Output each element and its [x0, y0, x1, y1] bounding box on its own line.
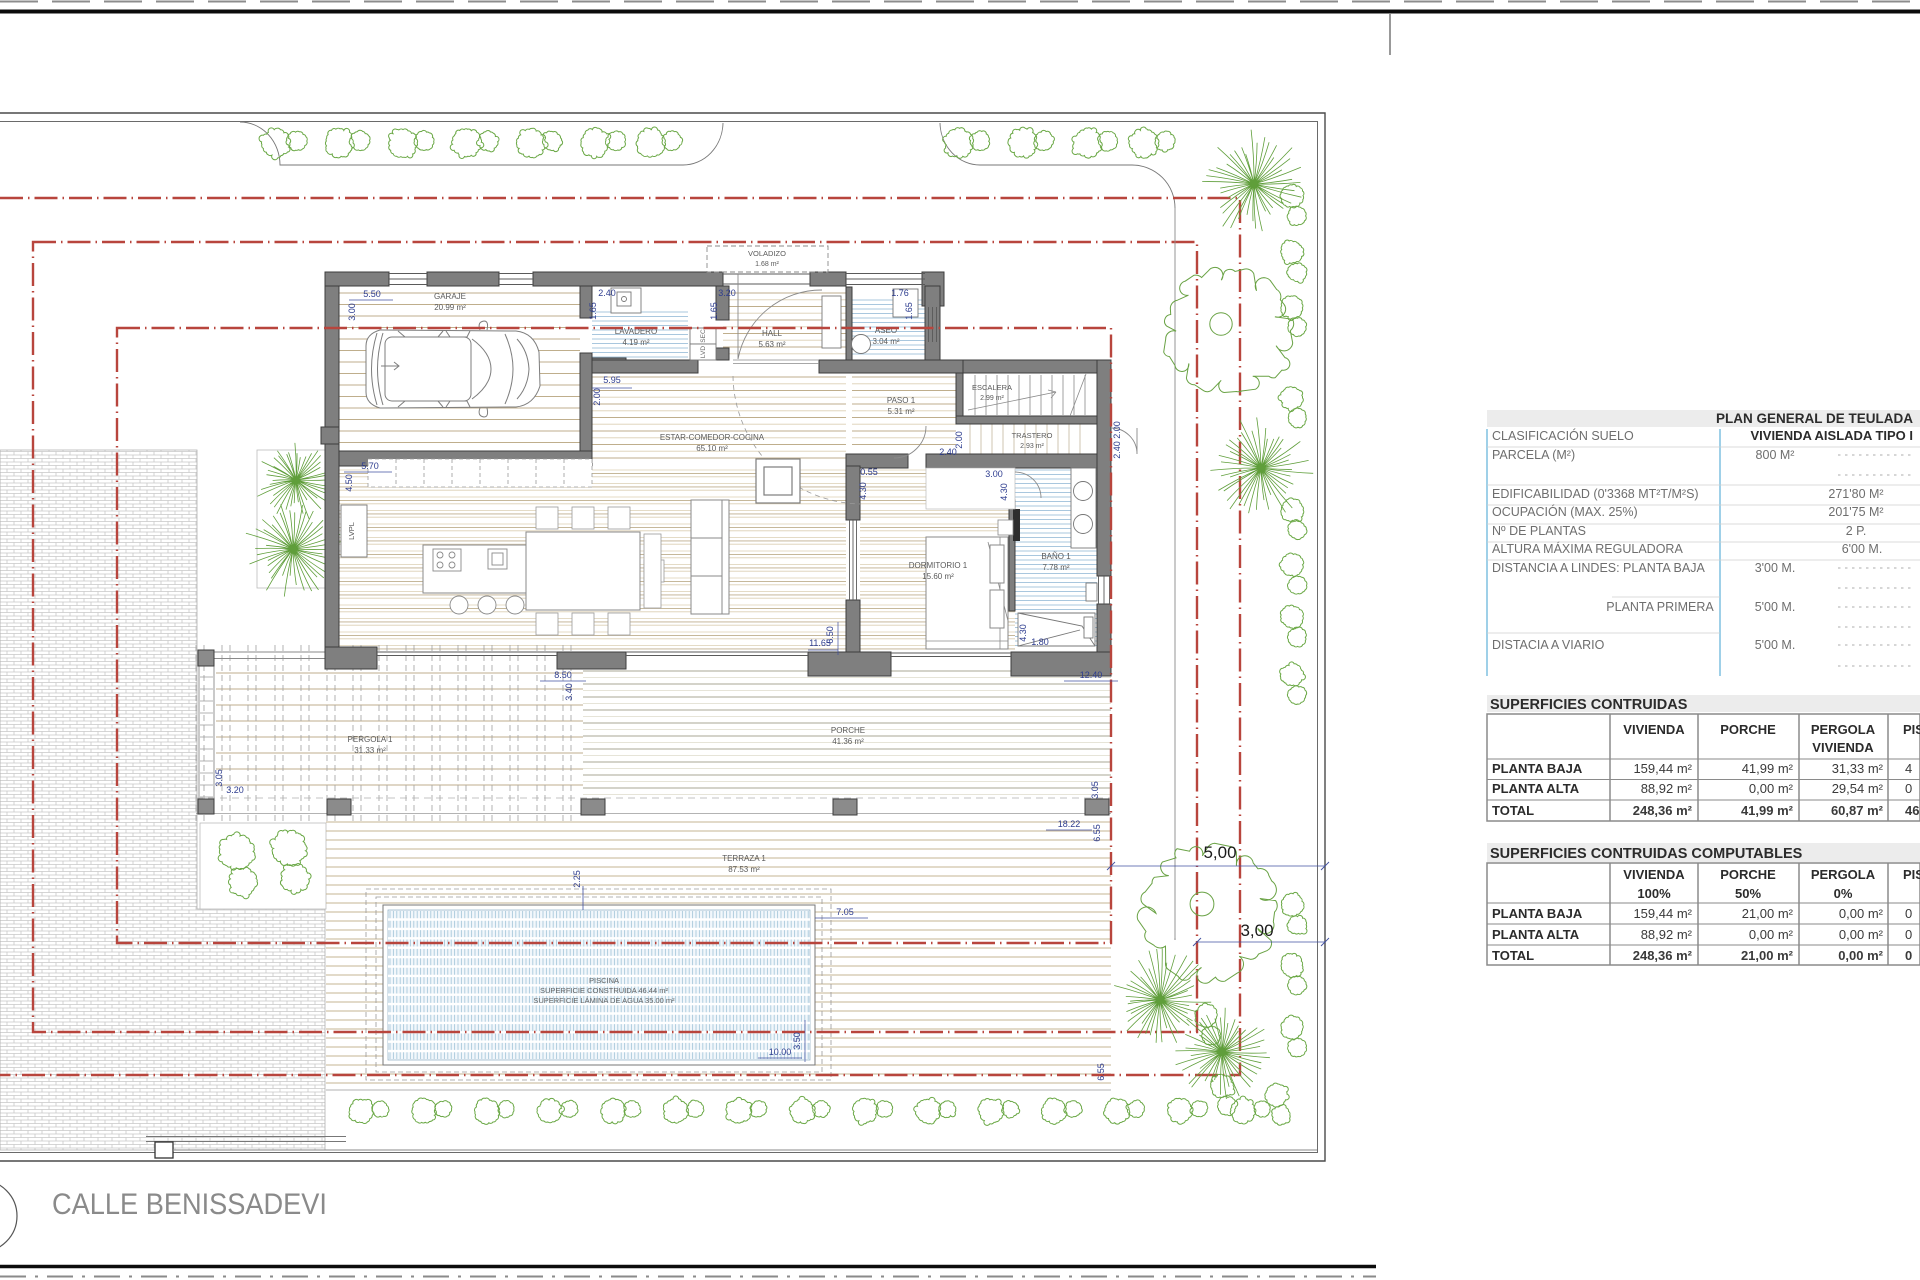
svg-text:PERGOLA: PERGOLA — [1811, 867, 1876, 882]
svg-text:LVD: LVD — [700, 346, 707, 358]
svg-text:0,00 m²: 0,00 m² — [1838, 948, 1883, 963]
svg-text:60,87 m²: 60,87 m² — [1831, 803, 1884, 818]
svg-text:DISTANCIA A LINDES: PLANTA BA: DISTANCIA A LINDES: PLANTA BAJA — [1492, 561, 1705, 575]
svg-text:ESCALERA: ESCALERA — [972, 383, 1012, 392]
svg-text:248,36 m²: 248,36 m² — [1633, 948, 1693, 963]
svg-text:SUPERFICIE LÁMINA DE AGUA 35.0: SUPERFICIE LÁMINA DE AGUA 35.00 m² — [533, 996, 675, 1005]
svg-text:88,92 m²: 88,92 m² — [1641, 927, 1693, 942]
svg-text:3.20: 3.20 — [226, 785, 244, 795]
svg-text:5.50: 5.50 — [363, 289, 381, 299]
svg-text:3'00 M.: 3'00 M. — [1755, 561, 1796, 575]
svg-text:1.76: 1.76 — [891, 288, 909, 298]
svg-text:2.40 2.00: 2.40 2.00 — [1112, 421, 1122, 459]
svg-text:TERRAZA 1: TERRAZA 1 — [722, 854, 766, 863]
svg-text:3.05: 3.05 — [1090, 781, 1100, 799]
svg-text:SUPERFICIE CONSTRUIDA 46.44 m²: SUPERFICIE CONSTRUIDA 46.44 m² — [540, 986, 668, 995]
svg-text:4.19 m²: 4.19 m² — [622, 338, 649, 347]
svg-text:50%: 50% — [1735, 886, 1761, 901]
svg-text:PORCHE: PORCHE — [1720, 867, 1776, 882]
svg-text:248,36 m²: 248,36 m² — [1633, 803, 1693, 818]
svg-text:DORMITORIO 1: DORMITORIO 1 — [909, 561, 968, 570]
svg-text:1.80: 1.80 — [1031, 637, 1049, 647]
svg-text:PLAN GENERAL DE TEULADA: PLAN GENERAL DE TEULADA — [1716, 411, 1913, 426]
svg-text:31,33 m²: 31,33 m² — [1832, 761, 1884, 776]
svg-text:PERGOLA 1: PERGOLA 1 — [348, 735, 393, 744]
svg-text:PLANTA ALTA: PLANTA ALTA — [1492, 781, 1580, 796]
svg-text:3.00: 3.00 — [347, 303, 357, 321]
svg-text:3.00: 3.00 — [985, 469, 1003, 479]
svg-text:ALTURA MÁXIMA REGULADORA: ALTURA MÁXIMA REGULADORA — [1492, 541, 1683, 556]
svg-text:2.99 m²: 2.99 m² — [980, 395, 1004, 402]
svg-text:HALL: HALL — [762, 329, 783, 338]
svg-text:CLASIFICACIÓN SUELO: CLASIFICACIÓN SUELO — [1492, 428, 1634, 443]
svg-text:PISCINA: PISCINA — [589, 976, 619, 985]
svg-text:VIVIENDA: VIVIENDA — [1623, 722, 1685, 737]
svg-text:2.93 m²: 2.93 m² — [1020, 443, 1044, 450]
svg-text:0,00 m²: 0,00 m² — [1749, 781, 1794, 796]
svg-text:5'00 M.: 5'00 M. — [1755, 638, 1796, 652]
svg-text:46: 46 — [1905, 803, 1919, 818]
svg-text:2.40: 2.40 — [598, 288, 616, 298]
svg-text:4.50: 4.50 — [344, 474, 354, 492]
svg-text:5.95: 5.95 — [603, 375, 621, 385]
svg-text:Nº DE PLANTAS: Nº DE PLANTAS — [1492, 524, 1586, 538]
svg-text:41,99 m²: 41,99 m² — [1742, 761, 1794, 776]
svg-text:5.31 m²: 5.31 m² — [887, 407, 914, 416]
svg-text:6.55: 6.55 — [1092, 824, 1102, 842]
svg-text:5,00: 5,00 — [1203, 843, 1236, 862]
svg-text:0%: 0% — [1834, 886, 1853, 901]
svg-text:201'75 M²: 201'75 M² — [1828, 505, 1883, 519]
svg-text:2.00: 2.00 — [592, 388, 602, 406]
svg-text:2.25: 2.25 — [572, 870, 582, 888]
svg-text:PIS: PIS — [1903, 867, 1920, 882]
svg-text:18.22: 18.22 — [1058, 819, 1081, 829]
svg-text:PORCHE: PORCHE — [1720, 722, 1776, 737]
svg-text:271'80 M²: 271'80 M² — [1828, 487, 1883, 501]
svg-text:PARCELA (M²): PARCELA (M²) — [1492, 448, 1575, 462]
svg-text:41,99 m²: 41,99 m² — [1741, 803, 1794, 818]
svg-text:800 M²: 800 M² — [1756, 448, 1795, 462]
svg-text:7.05: 7.05 — [836, 907, 854, 917]
svg-text:3.20: 3.20 — [718, 288, 736, 298]
svg-text:TOTAL: TOTAL — [1492, 803, 1534, 818]
svg-text:0: 0 — [1905, 927, 1912, 942]
svg-text:SEC: SEC — [700, 329, 707, 343]
svg-text:1.65: 1.65 — [709, 302, 719, 320]
svg-text:1.68 m²: 1.68 m² — [755, 261, 779, 268]
svg-text:EDIFICABILIDAD (0'3368 MT²T/M²: EDIFICABILIDAD (0'3368 MT²T/M²S) — [1492, 487, 1699, 501]
svg-text:0: 0 — [1905, 906, 1912, 921]
svg-text:15.60 m²: 15.60 m² — [922, 572, 954, 581]
svg-text:4.30: 4.30 — [999, 483, 1009, 501]
svg-text:PASO 1: PASO 1 — [887, 396, 916, 405]
svg-text:8.50: 8.50 — [554, 670, 572, 680]
svg-text:TRASTERO: TRASTERO — [1012, 431, 1053, 440]
svg-text:2.00: 2.00 — [954, 431, 964, 449]
svg-text:ESTAR-COMEDOR-COCINA: ESTAR-COMEDOR-COCINA — [660, 433, 765, 442]
svg-text:1.65: 1.65 — [904, 302, 914, 320]
svg-text:21,00 m²: 21,00 m² — [1742, 906, 1794, 921]
svg-text:BAÑO 1: BAÑO 1 — [1041, 552, 1071, 561]
svg-text:VOLADIZO: VOLADIZO — [748, 249, 786, 258]
svg-text:6.50: 6.50 — [825, 626, 835, 644]
svg-text:SUPERFICIES CONTRUIDAS COMPUTA: SUPERFICIES CONTRUIDAS COMPUTABLES — [1490, 846, 1803, 862]
svg-text:CALLE BENISSADEVI: CALLE BENISSADEVI — [52, 1188, 327, 1221]
svg-text:31.33 m²: 31.33 m² — [354, 746, 386, 755]
svg-text:4: 4 — [1905, 761, 1912, 776]
svg-text:OCUPACIÓN (MAX. 25%): OCUPACIÓN (MAX. 25%) — [1492, 504, 1638, 519]
svg-text:5.63 m²: 5.63 m² — [758, 340, 785, 349]
svg-text:159,44 m²: 159,44 m² — [1633, 906, 1692, 921]
svg-text:100%: 100% — [1637, 886, 1671, 901]
svg-text:3.50: 3.50 — [792, 1032, 802, 1050]
svg-text:3,00: 3,00 — [1240, 921, 1273, 940]
svg-text:0,00 m²: 0,00 m² — [1749, 927, 1794, 942]
svg-text:65.10 m²: 65.10 m² — [696, 444, 728, 453]
svg-text:6.55: 6.55 — [1096, 1063, 1106, 1081]
svg-text:VIVIENDA AISLADA TIPO I: VIVIENDA AISLADA TIPO I — [1750, 428, 1913, 443]
svg-text:0: 0 — [1905, 781, 1912, 796]
svg-text:VIVIENDA: VIVIENDA — [1623, 867, 1685, 882]
svg-text:5'00 M.: 5'00 M. — [1755, 600, 1796, 614]
svg-text:29,54 m²: 29,54 m² — [1832, 781, 1884, 796]
svg-text:PIS: PIS — [1903, 722, 1920, 737]
svg-text:PLANTA PRIMERA: PLANTA PRIMERA — [1606, 600, 1714, 614]
svg-text:LVPL: LVPL — [347, 522, 356, 540]
svg-text:PLANTA ALTA: PLANTA ALTA — [1492, 927, 1580, 942]
svg-text:2 P.: 2 P. — [1846, 524, 1867, 538]
svg-text:0,00 m²: 0,00 m² — [1839, 927, 1884, 942]
svg-text:6'00 M.: 6'00 M. — [1842, 542, 1883, 556]
svg-text:7.78 m²: 7.78 m² — [1042, 563, 1069, 572]
svg-text:21,00 m²: 21,00 m² — [1741, 948, 1794, 963]
svg-text:4.30: 4.30 — [1018, 624, 1028, 642]
svg-text:0: 0 — [1905, 948, 1912, 963]
svg-text:0.55: 0.55 — [860, 467, 878, 477]
svg-text:159,44 m²: 159,44 m² — [1633, 761, 1692, 776]
svg-text:VIVIENDA: VIVIENDA — [1812, 740, 1874, 755]
svg-text:1.65: 1.65 — [588, 302, 598, 320]
svg-text:SUPERFICIES CONTRUIDAS: SUPERFICIES CONTRUIDAS — [1490, 697, 1688, 713]
svg-text:10.00: 10.00 — [769, 1047, 792, 1057]
svg-text:DISTACIA A VIARIO: DISTACIA A VIARIO — [1492, 638, 1605, 652]
svg-text:5.70: 5.70 — [361, 461, 379, 471]
svg-text:12.40: 12.40 — [1080, 670, 1103, 680]
svg-text:PORCHE: PORCHE — [831, 726, 865, 735]
svg-text:PERGOLA: PERGOLA — [1811, 722, 1876, 737]
svg-text:PLANTA BAJA: PLANTA BAJA — [1492, 906, 1583, 921]
svg-text:3.05: 3.05 — [214, 769, 224, 787]
svg-text:TOTAL: TOTAL — [1492, 948, 1534, 963]
svg-text:3.40: 3.40 — [564, 683, 574, 701]
svg-text:GARAJE: GARAJE — [434, 292, 466, 301]
svg-text:88,92 m²: 88,92 m² — [1641, 781, 1693, 796]
svg-text:0,00 m²: 0,00 m² — [1839, 906, 1884, 921]
svg-text:41.36 m²: 41.36 m² — [832, 737, 864, 746]
svg-text:3.04 m²: 3.04 m² — [872, 337, 899, 346]
svg-text:20.99 m²: 20.99 m² — [434, 303, 466, 312]
svg-text:4.30: 4.30 — [858, 482, 868, 500]
svg-text:87.53 m²: 87.53 m² — [728, 865, 760, 874]
svg-text:PLANTA BAJA: PLANTA BAJA — [1492, 761, 1583, 776]
